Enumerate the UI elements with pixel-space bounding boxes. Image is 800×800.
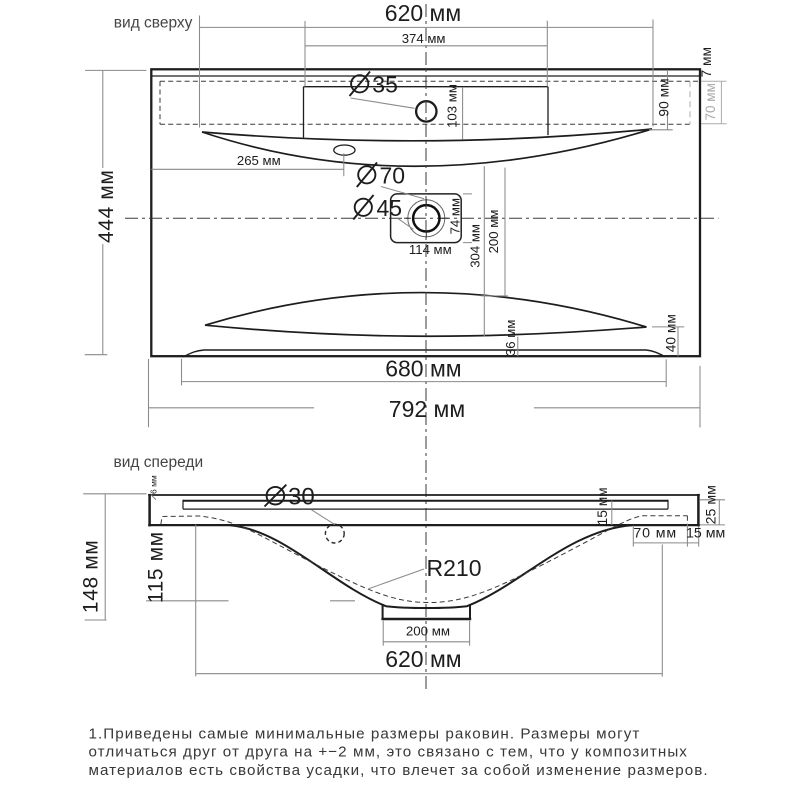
svg-text:680 мм: 680 мм [385,355,461,381]
svg-text:200 мм: 200 мм [406,624,450,639]
svg-text:304 мм: 304 мм [468,224,483,268]
svg-text:35: 35 [372,71,398,97]
svg-text:200 мм: 200 мм [486,210,501,254]
svg-text:374 мм: 374 мм [402,31,446,46]
svg-text:115 мм: 115 мм [145,531,168,603]
svg-text:620 мм: 620 мм [385,0,461,26]
svg-text:70: 70 [380,163,406,189]
svg-text:30: 30 [288,484,315,511]
svg-text:148 мм: 148 мм [79,540,102,613]
svg-text:114 мм: 114 мм [409,242,452,257]
svg-text:1.Приведены самые минимальные: 1.Приведены самые минимальные размеры ра… [89,725,641,742]
svg-text:7 мм: 7 мм [699,47,714,77]
svg-text:620 мм: 620 мм [385,646,461,672]
svg-text:6 мм: 6 мм [149,475,159,494]
svg-text:265 мм: 265 мм [237,153,281,168]
svg-text:103 мм: 103 мм [444,84,459,128]
svg-text:вид сверху: вид сверху [114,14,193,31]
svg-text:90 мм: 90 мм [657,78,672,116]
svg-text:40 мм: 40 мм [663,314,678,352]
svg-text:45: 45 [377,195,403,221]
svg-text:вид спереди: вид спереди [114,454,204,471]
svg-text:R210: R210 [427,555,482,581]
svg-text:отличаться друг от друга на +−: отличаться друг от друга на +−2 мм, это … [89,744,688,761]
svg-text:25 мм: 25 мм [704,485,720,524]
svg-text:15 мм: 15 мм [686,526,725,542]
svg-text:444 мм: 444 мм [95,170,118,243]
svg-text:15 мм: 15 мм [595,487,610,525]
svg-text:792 мм: 792 мм [389,396,465,422]
svg-text:74 мм: 74 мм [448,198,463,234]
svg-text:36 мм: 36 мм [503,320,518,356]
svg-text:70 мм: 70 мм [703,83,718,120]
svg-text:материалов есть свойства усадк: материалов есть свойства усадки, что вле… [89,762,709,779]
svg-text:70 мм: 70 мм [633,526,677,542]
